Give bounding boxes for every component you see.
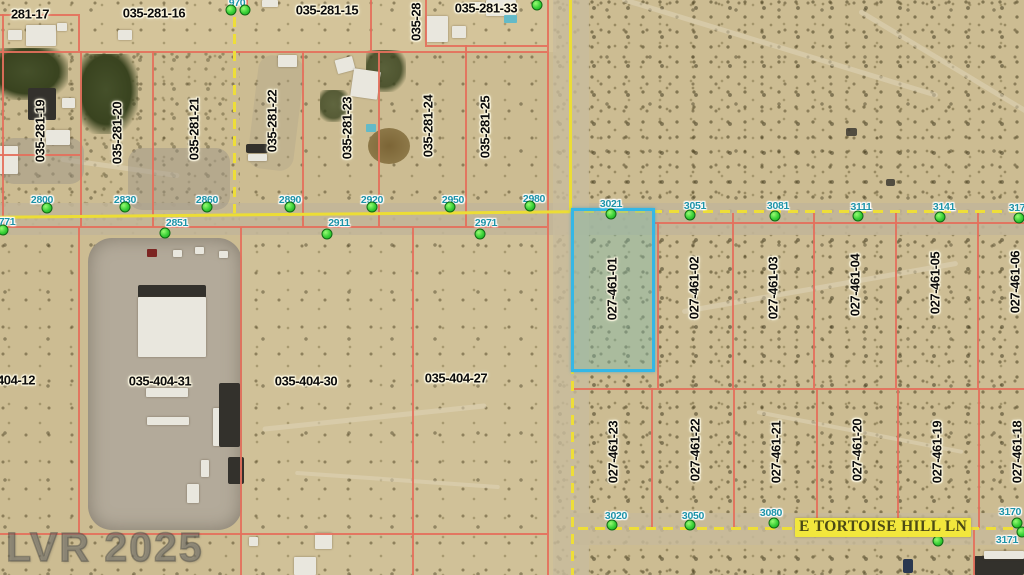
structure: [187, 484, 199, 503]
address-point-dot: [226, 5, 237, 16]
address-point-dot: [606, 209, 617, 220]
parcel-apn-label: 027-461-22: [688, 419, 703, 482]
parcel-boundary-line: [0, 51, 547, 53]
parcel-boundary-line: [370, 0, 372, 51]
parcel-boundary-line: [813, 213, 815, 388]
structure: [26, 25, 56, 46]
address-point-dot: [769, 518, 780, 529]
structure: [452, 26, 466, 38]
parcel-boundary-line: [816, 388, 818, 528]
structure: [62, 98, 75, 108]
address-point-dot: [120, 202, 131, 213]
parcel-boundary-line: [152, 51, 154, 227]
structure: [138, 297, 206, 357]
parcel-apn-label: 035-281-20: [110, 102, 125, 165]
parcel-apn-label: 027-461-23: [606, 421, 621, 484]
address-point-dot: [42, 203, 53, 214]
parcel-boundary-line: [0, 226, 547, 228]
address-point-dot: [685, 210, 696, 221]
address-point-dot: [322, 229, 333, 240]
parcel-boundary-line: [465, 45, 467, 227]
address-point-dot: [933, 536, 944, 547]
structure: [201, 460, 209, 477]
parcel-apn-label: 035-28: [409, 3, 424, 41]
parcel-apn-label: 027-461-19: [930, 421, 945, 484]
structure: [146, 388, 188, 397]
structure: [118, 30, 132, 40]
parcel-apn-label: 035-281-22: [265, 90, 280, 153]
structure: [219, 383, 240, 447]
parcel-boundary-line: [973, 528, 975, 575]
address-point-dot: [607, 520, 618, 531]
parcel-map[interactable]: 281-17035-281-16035-281-15035-281-33404-…: [0, 0, 1024, 575]
structure: [426, 16, 448, 42]
address-label: 3081: [767, 200, 789, 212]
parcel-apn-label: 027-461-04: [848, 254, 863, 317]
parcel-boundary-line: [895, 213, 897, 388]
parcel-boundary-line: [571, 388, 1024, 390]
street-name-label: E TORTOISE HILL LN: [795, 518, 971, 537]
parcel-apn-label: 404-12: [0, 373, 35, 388]
parcel-boundary-line: [655, 222, 1024, 224]
parcel-apn-label: 035-281-24: [421, 95, 436, 158]
address-point-dot: [685, 520, 696, 531]
parcel-apn-label: 035-281-25: [478, 96, 493, 159]
parcel-boundary-line: [78, 14, 80, 51]
parcel-apn-label: 035-281-19: [33, 100, 48, 163]
structure: [278, 55, 297, 67]
structure: [846, 128, 857, 136]
parcel-boundary-line: [78, 227, 80, 533]
address-label: 2911: [328, 217, 350, 229]
parcel-apn-label: 027-461-02: [687, 257, 702, 320]
structure: [504, 15, 517, 23]
parcel-boundary-line: [657, 222, 659, 388]
structure: [984, 551, 1024, 559]
address-point-dot: [525, 201, 536, 212]
structure: [248, 154, 267, 161]
parcel-boundary-line: [425, 45, 547, 47]
watermark: LVR 2025: [6, 524, 204, 571]
address-point-dot: [475, 229, 486, 240]
structure: [262, 0, 278, 7]
address-label: 2851: [166, 217, 188, 229]
parcel-apn-label: 027-461-21: [769, 421, 784, 484]
parcel-boundary-line: [978, 388, 980, 528]
structure: [366, 124, 376, 132]
parcel-boundary-line: [240, 227, 242, 575]
address-point-dot: [935, 212, 946, 223]
structure: [147, 417, 189, 425]
parcel-apn-label: 035-404-31: [129, 374, 192, 389]
parcel-apn-label: 035-281-15: [296, 3, 359, 18]
road-line-ns-top-east: [569, 0, 572, 212]
parcel-boundary-line: [80, 51, 82, 227]
structure: [294, 557, 316, 575]
parcel-apn-label: 027-461-18: [1010, 421, 1024, 484]
parcel-boundary-line: [2, 14, 4, 227]
parcel-boundary-line: [977, 213, 979, 388]
parcel-boundary-line: [302, 51, 304, 227]
address-point-dot: [445, 202, 456, 213]
parcel-boundary-line: [412, 227, 414, 575]
parcel-boundary-line: [547, 0, 549, 575]
parcel-apn-label: 027-461-05: [928, 252, 943, 315]
address-point-dot: [770, 211, 781, 222]
structure: [903, 559, 913, 573]
address-point-dot: [202, 202, 213, 213]
parcel-boundary-line: [651, 388, 653, 528]
address-label: 3141: [933, 201, 955, 213]
structure: [249, 537, 258, 546]
parcel-apn-label: 027-461-03: [766, 257, 781, 320]
road-line-ns-top-west: [233, 0, 236, 213]
structure: [57, 23, 67, 31]
structure: [173, 250, 182, 257]
structure: [147, 249, 157, 257]
parcel-apn-label: 035-404-27: [425, 371, 488, 386]
structure: [368, 128, 410, 164]
parcel-apn-label-highlighted: 027-461-01: [605, 258, 620, 321]
structure: [228, 457, 244, 484]
structure: [219, 251, 228, 258]
structure: [46, 130, 70, 145]
address-point-dot: [367, 202, 378, 213]
parcel-boundary-line: [732, 213, 734, 388]
parcel-boundary-line: [897, 388, 899, 528]
address-label: 2971: [475, 217, 497, 229]
structure: [195, 247, 204, 254]
address-point-dot: [1014, 213, 1024, 224]
address-point-dot: [240, 5, 251, 16]
address-point-dot: [853, 211, 864, 222]
parcel-boundary-line: [425, 0, 427, 45]
address-point-dot: [532, 0, 543, 11]
address-label: 3171: [996, 534, 1018, 546]
parcel-apn-label: 035-281-21: [187, 98, 202, 161]
structure: [8, 30, 22, 40]
structure: [315, 533, 332, 549]
address-point-dot: [160, 228, 171, 239]
address-label: 3170: [999, 506, 1021, 518]
parcel-apn-label: 035-404-30: [275, 374, 338, 389]
parcel-apn-label: 035-281-33: [455, 1, 518, 16]
parcel-apn-label: 027-461-20: [850, 419, 865, 482]
structure: [350, 68, 381, 99]
address-point-dot: [285, 202, 296, 213]
address-point-dot: [1017, 527, 1024, 538]
parcel-boundary-line: [733, 388, 735, 528]
parcel-apn-label: 281-17: [11, 7, 49, 22]
parcel-apn-label: 027-461-06: [1008, 251, 1023, 314]
parcel-apn-label: 035-281-23: [340, 97, 355, 160]
parcel-apn-label: 035-281-16: [123, 6, 186, 21]
structure: [886, 179, 895, 186]
